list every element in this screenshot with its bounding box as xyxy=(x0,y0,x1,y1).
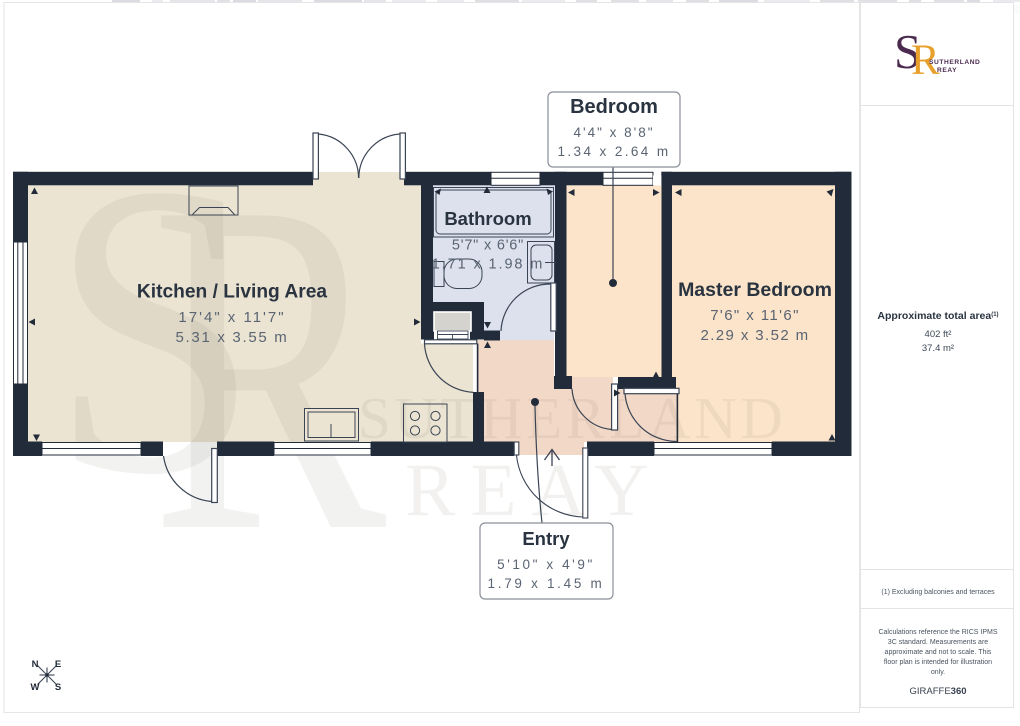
svg-text:5'7" x 6'6": 5'7" x 6'6" xyxy=(452,238,524,254)
svg-text:17'4" x 11'7": 17'4" x 11'7" xyxy=(178,309,285,326)
svg-text:SUTHERLAND: SUTHERLAND xyxy=(929,59,980,66)
svg-text:approximate and not to scale.: approximate and not to scale. This xyxy=(885,649,992,656)
svg-text:402 ft²: 402 ft² xyxy=(925,329,952,340)
svg-text:REAY: REAY xyxy=(937,67,957,74)
svg-text:1.79 x 1.45 m: 1.79 x 1.45 m xyxy=(488,576,605,591)
svg-text:GIRAFFE360: GIRAFFE360 xyxy=(909,686,966,697)
svg-text:Approximate total area(1): Approximate total area(1) xyxy=(877,310,998,322)
svg-text:2.29 x 3.52 m: 2.29 x 3.52 m xyxy=(700,327,809,344)
svg-text:5'10" x 4'9": 5'10" x 4'9" xyxy=(497,557,595,572)
svg-text:Bathroom: Bathroom xyxy=(444,208,531,229)
svg-text:Bedroom: Bedroom xyxy=(570,96,658,118)
svg-text:Master Bedroom: Master Bedroom xyxy=(678,279,832,301)
svg-text:(1) Excluding balconies and te: (1) Excluding balconies and terraces xyxy=(881,589,995,596)
svg-text:REAY: REAY xyxy=(405,449,664,532)
svg-text:37.4 m²: 37.4 m² xyxy=(922,343,954,354)
svg-text:Calculations reference the RIC: Calculations reference the RICS IPMS xyxy=(878,629,997,636)
svg-text:N: N xyxy=(32,659,39,670)
svg-text:S: S xyxy=(55,682,61,693)
svg-text:1.34 x 2.64 m: 1.34 x 2.64 m xyxy=(558,144,671,159)
svg-text:only.: only. xyxy=(931,669,945,676)
svg-text:floor plan is intended for ill: floor plan is intended for illustration xyxy=(884,659,992,666)
svg-text:W: W xyxy=(31,682,40,693)
svg-text:3C standard. Measurements are: 3C standard. Measurements are xyxy=(888,639,988,646)
svg-text:E: E xyxy=(55,659,61,670)
svg-text:1.71 x 1.98 m: 1.71 x 1.98 m xyxy=(432,257,545,273)
svg-text:5.31 x 3.55 m: 5.31 x 3.55 m xyxy=(176,329,289,346)
svg-text:Entry: Entry xyxy=(522,528,570,549)
svg-text:4'4" x 8'8": 4'4" x 8'8" xyxy=(573,125,654,140)
svg-text:7'6" x 11'6": 7'6" x 11'6" xyxy=(710,307,800,324)
svg-text:Kitchen / Living Area: Kitchen / Living Area xyxy=(137,282,327,303)
